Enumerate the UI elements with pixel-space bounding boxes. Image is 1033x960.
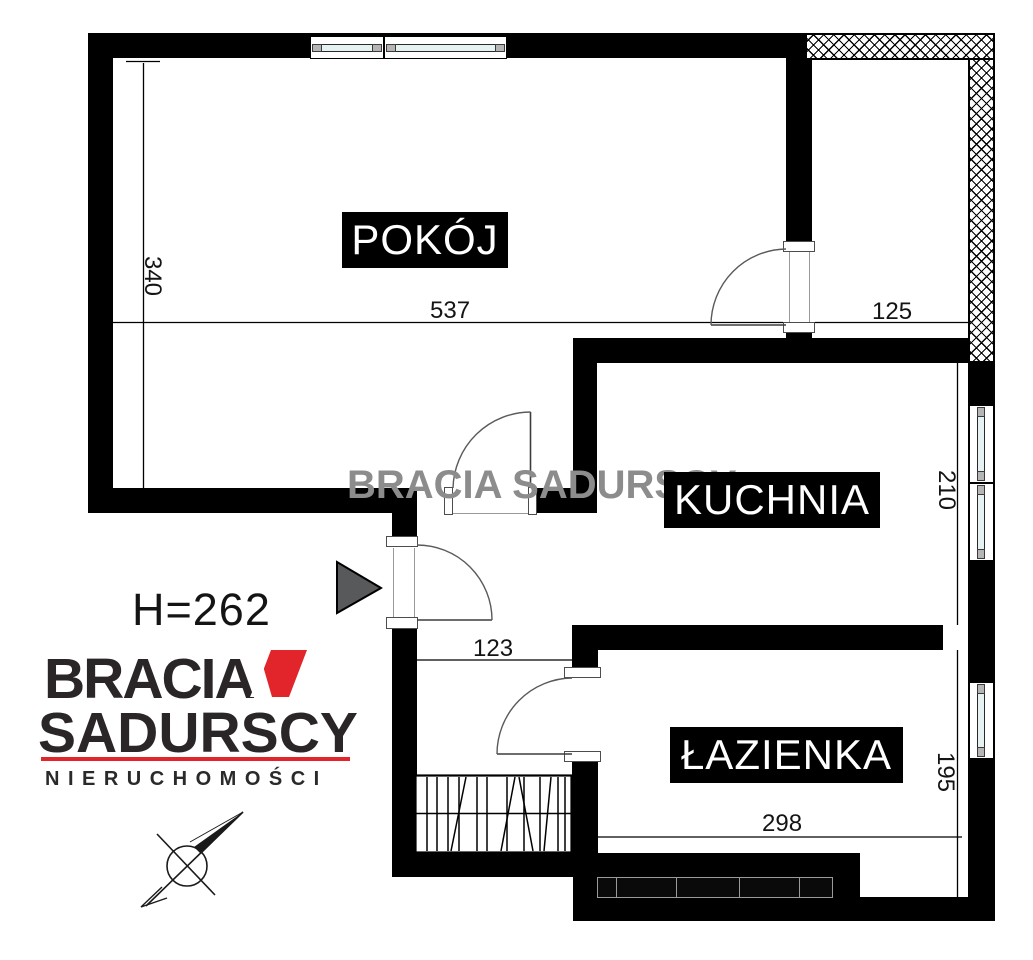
room-label-kuchnia: KUCHNIA: [664, 472, 880, 528]
dimension-hallway-width: 123: [473, 635, 513, 663]
dimension-value: 210: [932, 470, 960, 510]
dimension-lazienka-height: 195: [920, 747, 970, 797]
dimension-value: 340: [138, 256, 166, 296]
door-arc-lazienka: [497, 678, 572, 754]
entrance-arrow-icon: [337, 562, 381, 613]
ceiling-height-label: H=262: [132, 584, 271, 636]
door-arc-entrance: [417, 545, 492, 620]
door-arc-pokoj-balcony: [711, 249, 786, 325]
room-name: ŁAZIENKA: [681, 731, 892, 779]
room-label-lazienka: ŁAZIENKA: [670, 727, 903, 783]
floor-plan-canvas: POKÓJ KUCHNIA ŁAZIENKA 537 125 123 298 3…: [0, 0, 1033, 960]
room-label-pokoj: POKÓJ: [342, 212, 508, 268]
dimension-lazienka-width: 298: [762, 810, 802, 838]
dimension-pokoj-width: 537: [430, 297, 470, 325]
door-leaves: [417, 325, 786, 754]
room-name: KUCHNIA: [674, 476, 870, 524]
dimension-balcony-width: 125: [872, 298, 912, 326]
logo-divider-line: [41, 757, 350, 761]
logo-red-flag-icon: [248, 646, 318, 702]
dimension-pokoj-height: 340: [127, 251, 177, 301]
dimension-value: 195: [931, 752, 959, 792]
logo-tagline: NIERUCHOMOŚCI: [45, 768, 328, 791]
compass-north-icon: [141, 812, 243, 907]
room-name: POKÓJ: [351, 216, 498, 264]
dimension-kuchnia-height: 210: [921, 465, 971, 515]
stairs-fixture: [416, 776, 572, 853]
